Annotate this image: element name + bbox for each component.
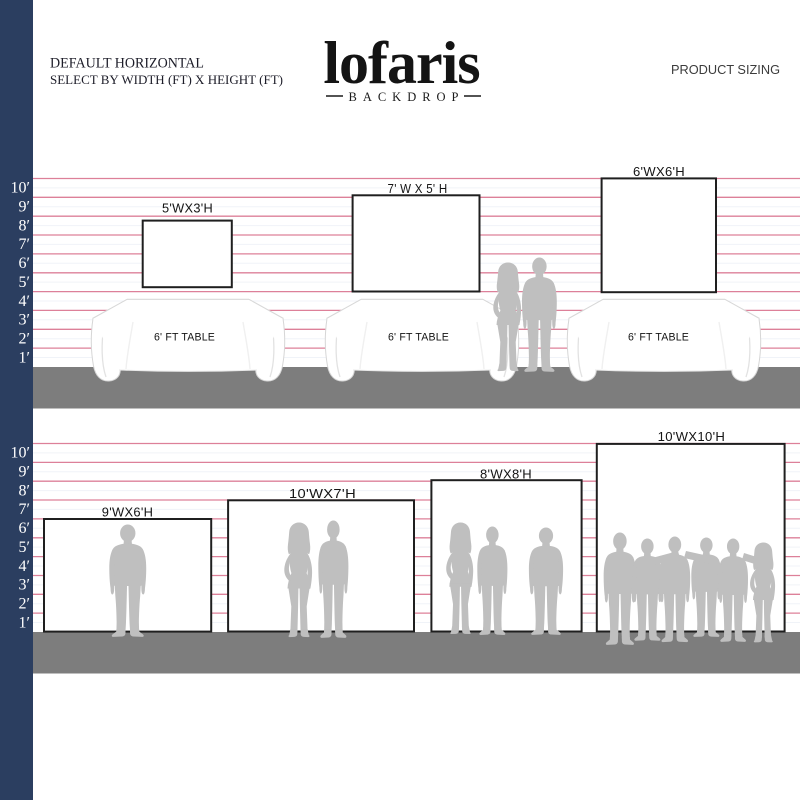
svg-text:10'WX7'H: 10'WX7'H [289,486,356,501]
svg-text:7' W X 5' H: 7' W X 5' H [388,181,448,196]
svg-text:SELECT BY WIDTH (FT) X HEIGHT: SELECT BY WIDTH (FT) X HEIGHT (FT) [50,72,283,87]
svg-text:6′: 6′ [19,255,31,272]
svg-text:9′: 9′ [19,464,31,481]
svg-text:2′: 2′ [19,331,31,348]
svg-text:2′: 2′ [19,596,31,613]
svg-text:8'WX8'H: 8'WX8'H [480,466,532,481]
svg-text:4′: 4′ [19,293,31,310]
svg-text:PRODUCT SIZING: PRODUCT SIZING [671,62,780,77]
svg-text:9′: 9′ [19,199,31,216]
svg-text:10′: 10′ [11,180,31,197]
svg-text:6′: 6′ [19,520,31,537]
svg-text:7′: 7′ [19,236,31,253]
svg-text:3′: 3′ [19,577,31,594]
svg-text:9'WX6'H: 9'WX6'H [102,505,154,520]
svg-text:6' FT TABLE: 6' FT TABLE [388,332,449,344]
svg-text:10'WX10'H: 10'WX10'H [658,429,726,444]
svg-text:3′: 3′ [19,312,31,329]
svg-text:6' FT TABLE: 6' FT TABLE [628,332,689,344]
svg-text:1′: 1′ [19,349,31,366]
svg-text:10′: 10′ [11,445,31,462]
svg-text:lofaris: lofaris [323,30,479,96]
svg-text:1′: 1′ [19,614,31,631]
svg-text:7′: 7′ [19,501,31,518]
svg-text:6'WX6'H: 6'WX6'H [633,164,685,179]
svg-text:5′: 5′ [19,274,31,291]
svg-text:8′: 8′ [19,217,31,234]
svg-text:6' FT TABLE: 6' FT TABLE [154,332,215,344]
svg-text:DEFAULT HORIZONTAL: DEFAULT HORIZONTAL [50,56,204,72]
svg-text:5'WX3'H: 5'WX3'H [162,201,213,216]
svg-text:5′: 5′ [19,539,31,556]
svg-text:8′: 8′ [19,482,31,499]
svg-text:4′: 4′ [19,558,31,575]
